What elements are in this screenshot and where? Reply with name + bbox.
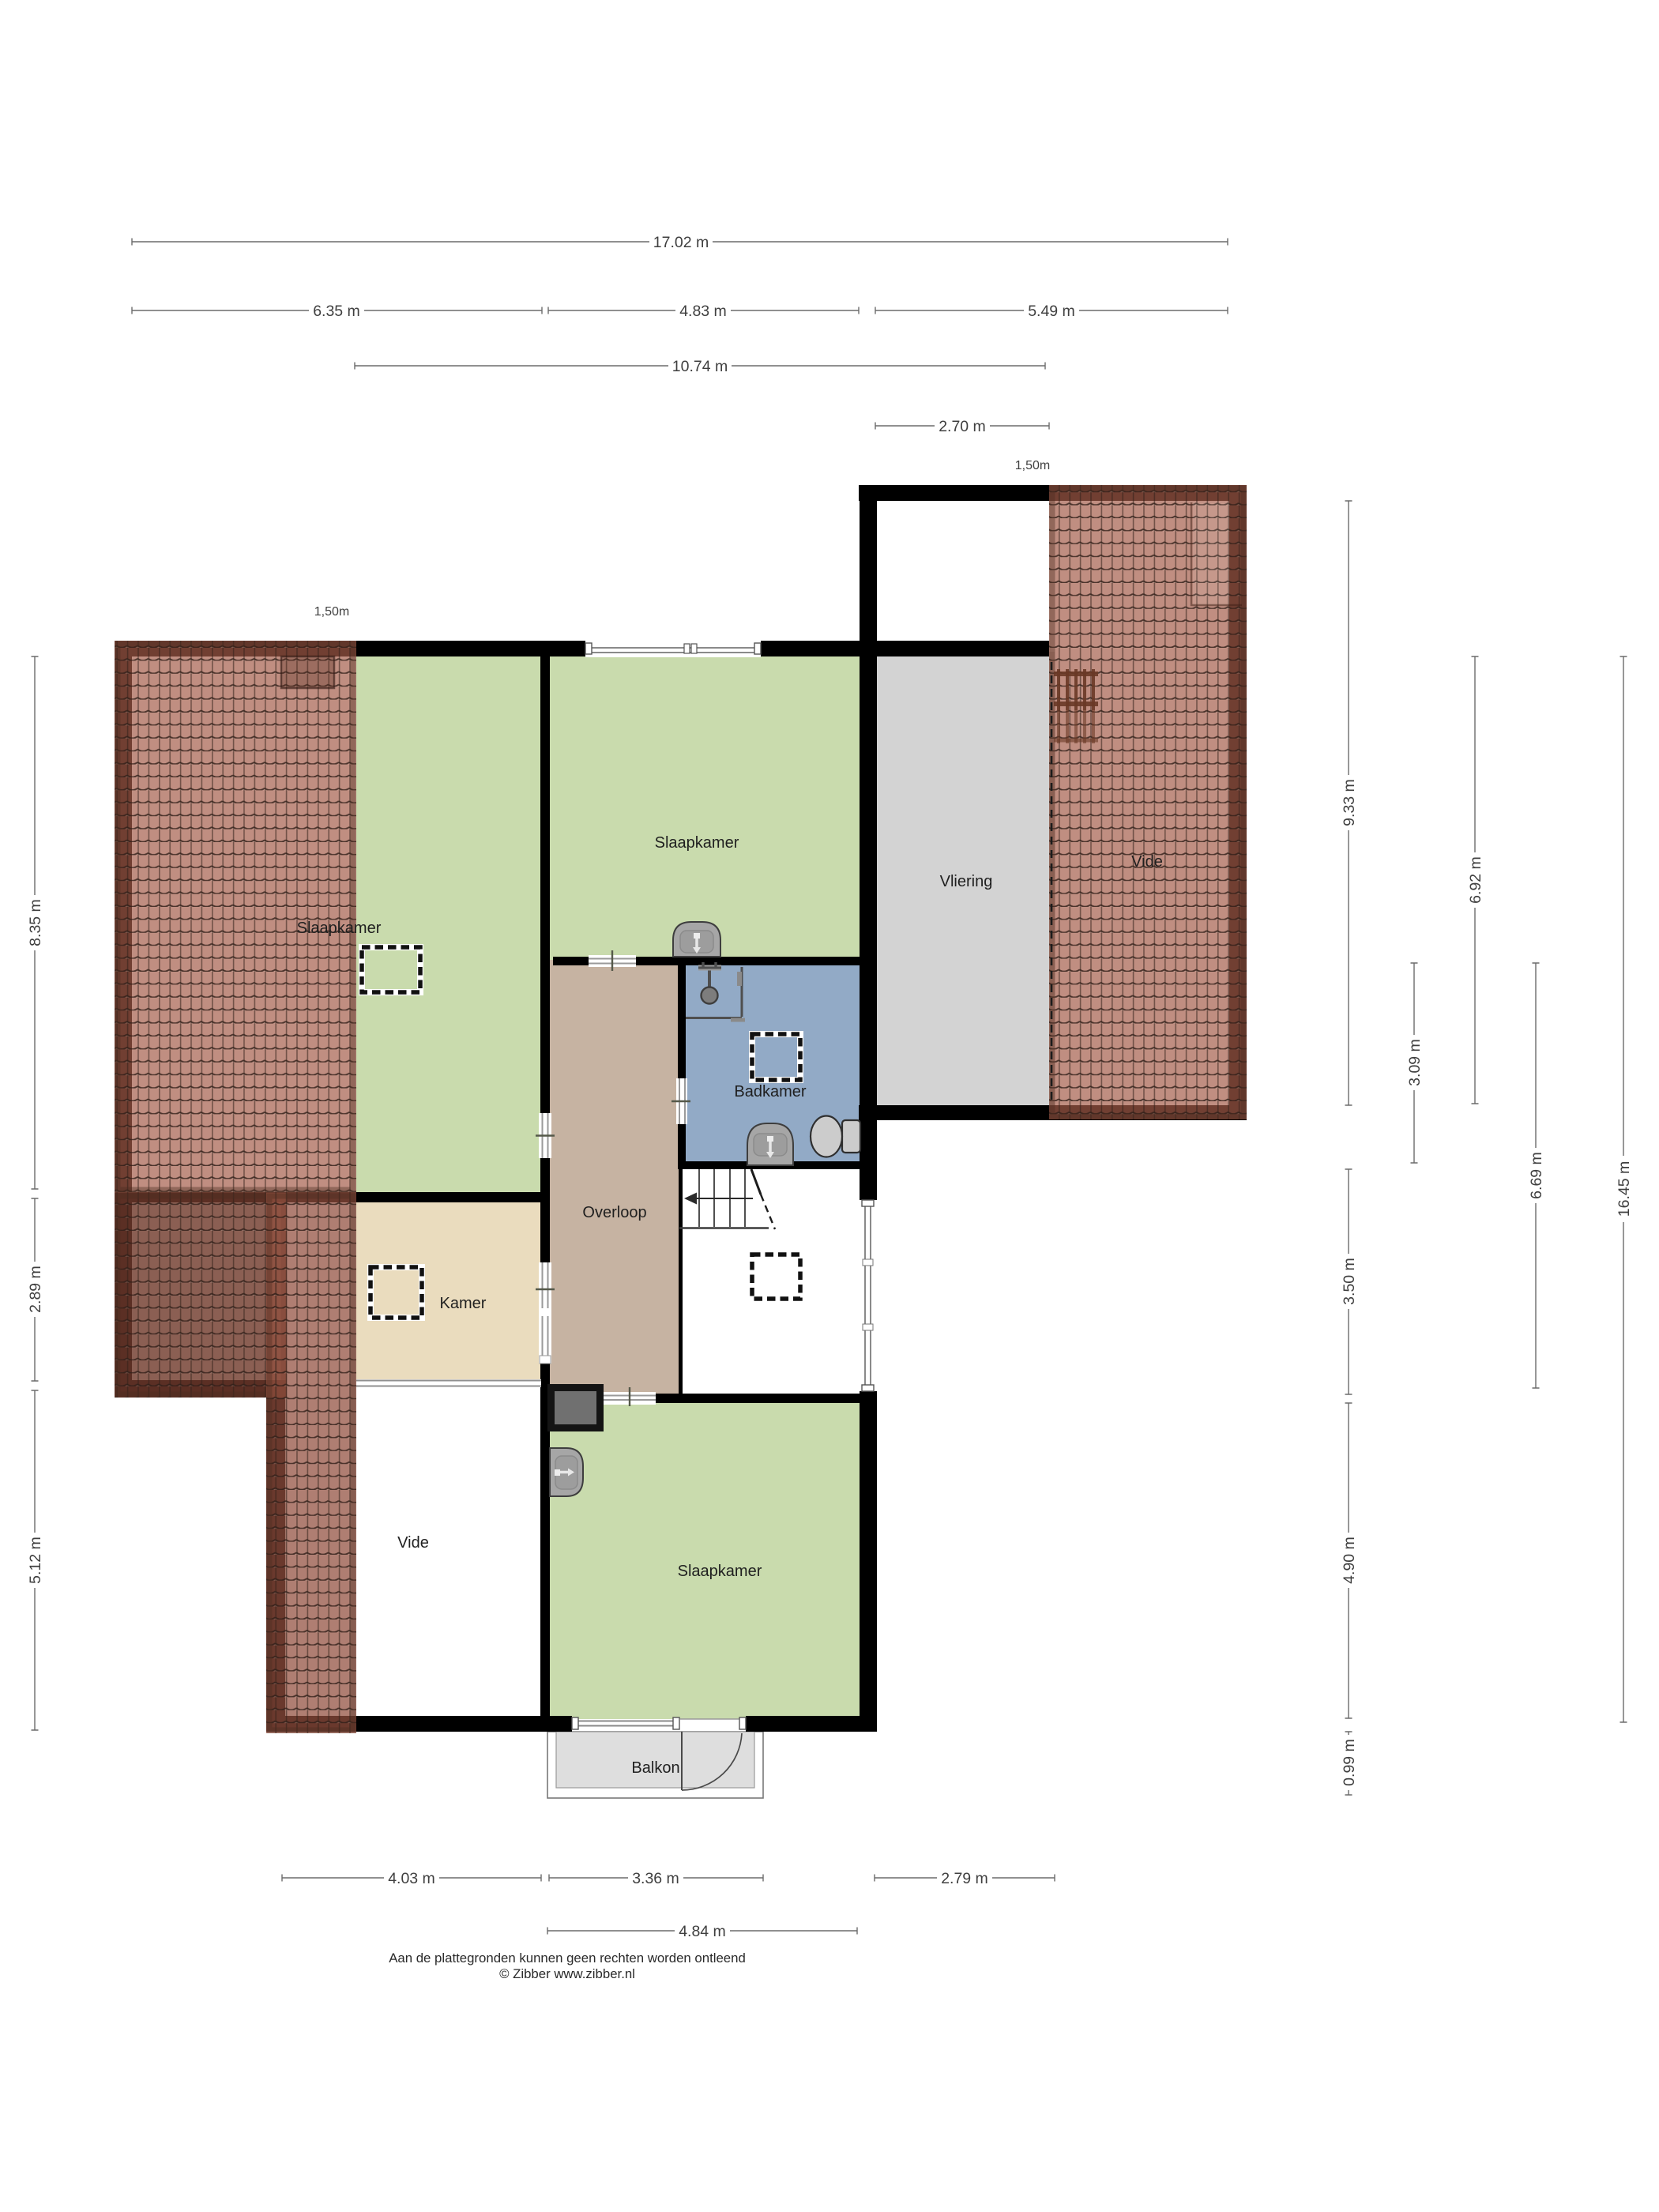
svg-text:Vliering: Vliering [940,873,993,890]
svg-text:1,50m: 1,50m [1015,459,1050,472]
svg-text:0.99 m: 0.99 m [1341,1739,1358,1786]
svg-text:17.02 m: 17.02 m [653,234,709,251]
svg-text:4.84 m: 4.84 m [679,1923,726,1940]
svg-text:9.33 m: 9.33 m [1341,779,1358,826]
svg-text:5.49 m: 5.49 m [1028,303,1075,320]
svg-text:10.74 m: 10.74 m [672,358,728,375]
svg-text:1,50m: 1,50m [314,605,349,619]
svg-text:© Zibber www.zibber.nl: © Zibber www.zibber.nl [499,1966,635,1981]
svg-text:3.50 m: 3.50 m [1341,1258,1358,1305]
svg-text:3.09 m: 3.09 m [1406,1039,1424,1086]
svg-text:16.45 m: 16.45 m [1616,1161,1633,1217]
svg-text:4.90 m: 4.90 m [1341,1537,1358,1584]
svg-text:4.83 m: 4.83 m [679,303,727,320]
svg-text:2.89 m: 2.89 m [27,1266,44,1313]
svg-text:4.03 m: 4.03 m [388,1870,435,1887]
svg-text:2.79 m: 2.79 m [941,1870,988,1887]
svg-text:6.35 m: 6.35 m [313,303,360,320]
svg-text:8.35 m: 8.35 m [27,899,44,946]
svg-text:Vide: Vide [1131,853,1163,871]
svg-text:Slaapkamer: Slaapkamer [655,834,739,852]
svg-text:6.69 m: 6.69 m [1528,1152,1545,1199]
svg-text:Badkamer: Badkamer [734,1083,806,1100]
svg-text:Slaapkamer: Slaapkamer [678,1563,762,1580]
svg-text:Aan de plattegronden kunnen ge: Aan de plattegronden kunnen geen rechten… [389,1951,746,1966]
svg-text:3.36 m: 3.36 m [632,1870,679,1887]
svg-text:Slaapkamer: Slaapkamer [297,920,382,937]
svg-text:Balkon: Balkon [631,1759,679,1777]
svg-text:Kamer: Kamer [440,1295,487,1312]
svg-text:6.92 m: 6.92 m [1467,856,1484,904]
svg-text:Overloop: Overloop [582,1204,646,1221]
svg-text:2.70 m: 2.70 m [939,418,986,435]
svg-text:5.12 m: 5.12 m [27,1537,44,1584]
svg-text:Vide: Vide [397,1534,429,1552]
